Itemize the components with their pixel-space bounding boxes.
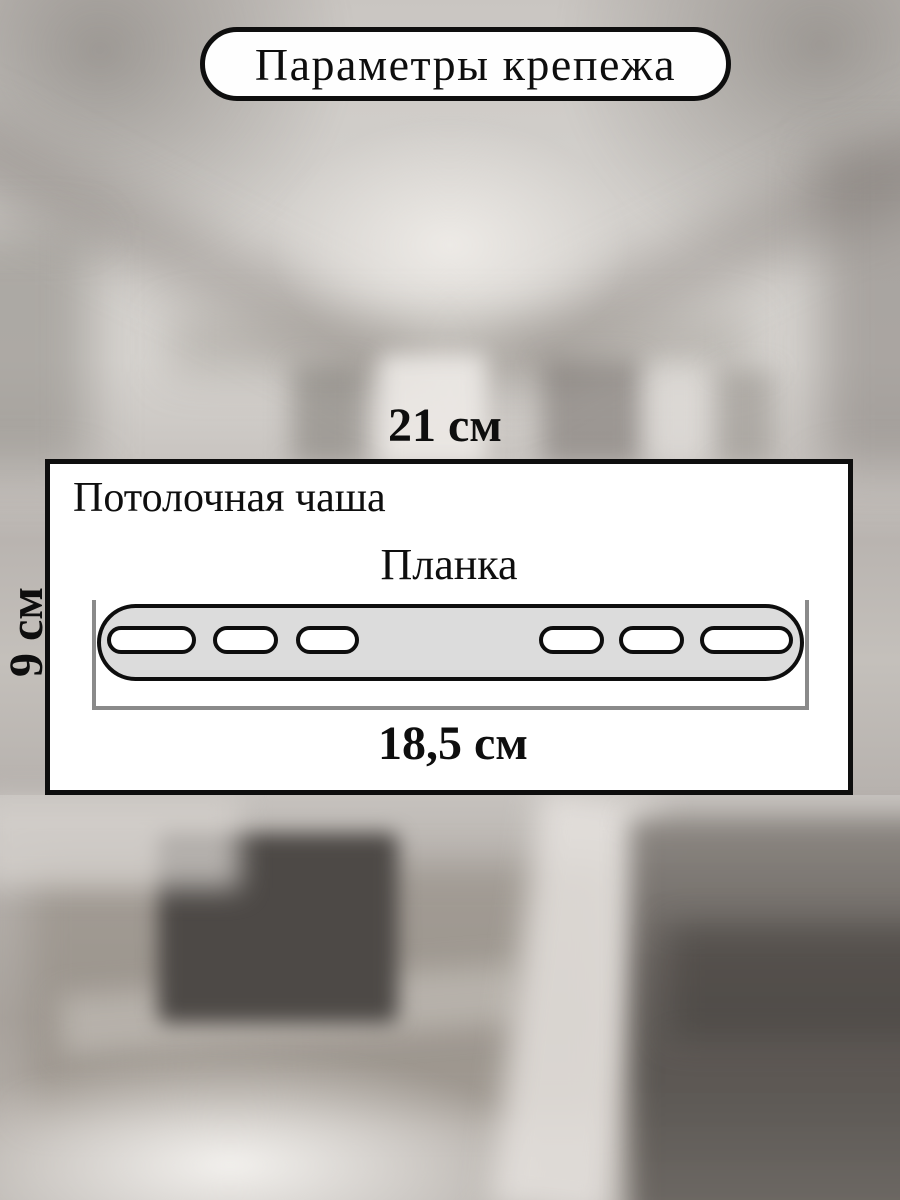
bg-coffee-table [158, 833, 398, 1023]
bg-ceiling-panel [270, 120, 630, 370]
bg-floor [0, 795, 900, 1200]
bg-ceiling-beam-left [0, 98, 426, 400]
bg-rug [30, 865, 610, 1115]
bg-wall-streak-light-2 [648, 365, 710, 465]
bg-below-panel-light [0, 798, 240, 888]
bg-cornice-band [170, 318, 750, 372]
title-text: Параметры крепежа [255, 38, 676, 91]
plate-slot-3 [296, 626, 359, 654]
plate-slot-1 [107, 626, 196, 654]
plate-label: Планка [349, 540, 549, 591]
bg-ceiling-beam-right [474, 98, 900, 400]
mounting-plate [97, 604, 804, 681]
canopy-label: Потолочная чаша [73, 474, 386, 522]
bg-wall-column-left [0, 230, 90, 470]
bg-rug-highlight [58, 964, 521, 1056]
bg-sofa-right [630, 818, 900, 1200]
height-dimension-label: 9 см [5, 552, 49, 712]
bg-sofa-shadow [668, 925, 900, 1040]
bg-wall-column-right [820, 150, 900, 470]
plate-slot-5 [619, 626, 684, 654]
title-badge: Параметры крепежа [200, 27, 731, 101]
bg-floor-glow [0, 1050, 550, 1200]
plate-slot-6 [700, 626, 793, 654]
bg-wall-streak-dark-2 [542, 360, 642, 465]
plate-slot-2 [213, 626, 278, 654]
plate-width-dimension-label: 18,5 см [353, 718, 553, 771]
plate-slot-4 [539, 626, 604, 654]
bg-light-band [490, 789, 660, 1200]
bg-wall-streak-dark-3 [718, 370, 773, 465]
width-dimension-label: 21 см [345, 400, 545, 453]
infographic-root: Параметры крепежа 21 см 9 см Потолочная … [0, 0, 900, 1200]
